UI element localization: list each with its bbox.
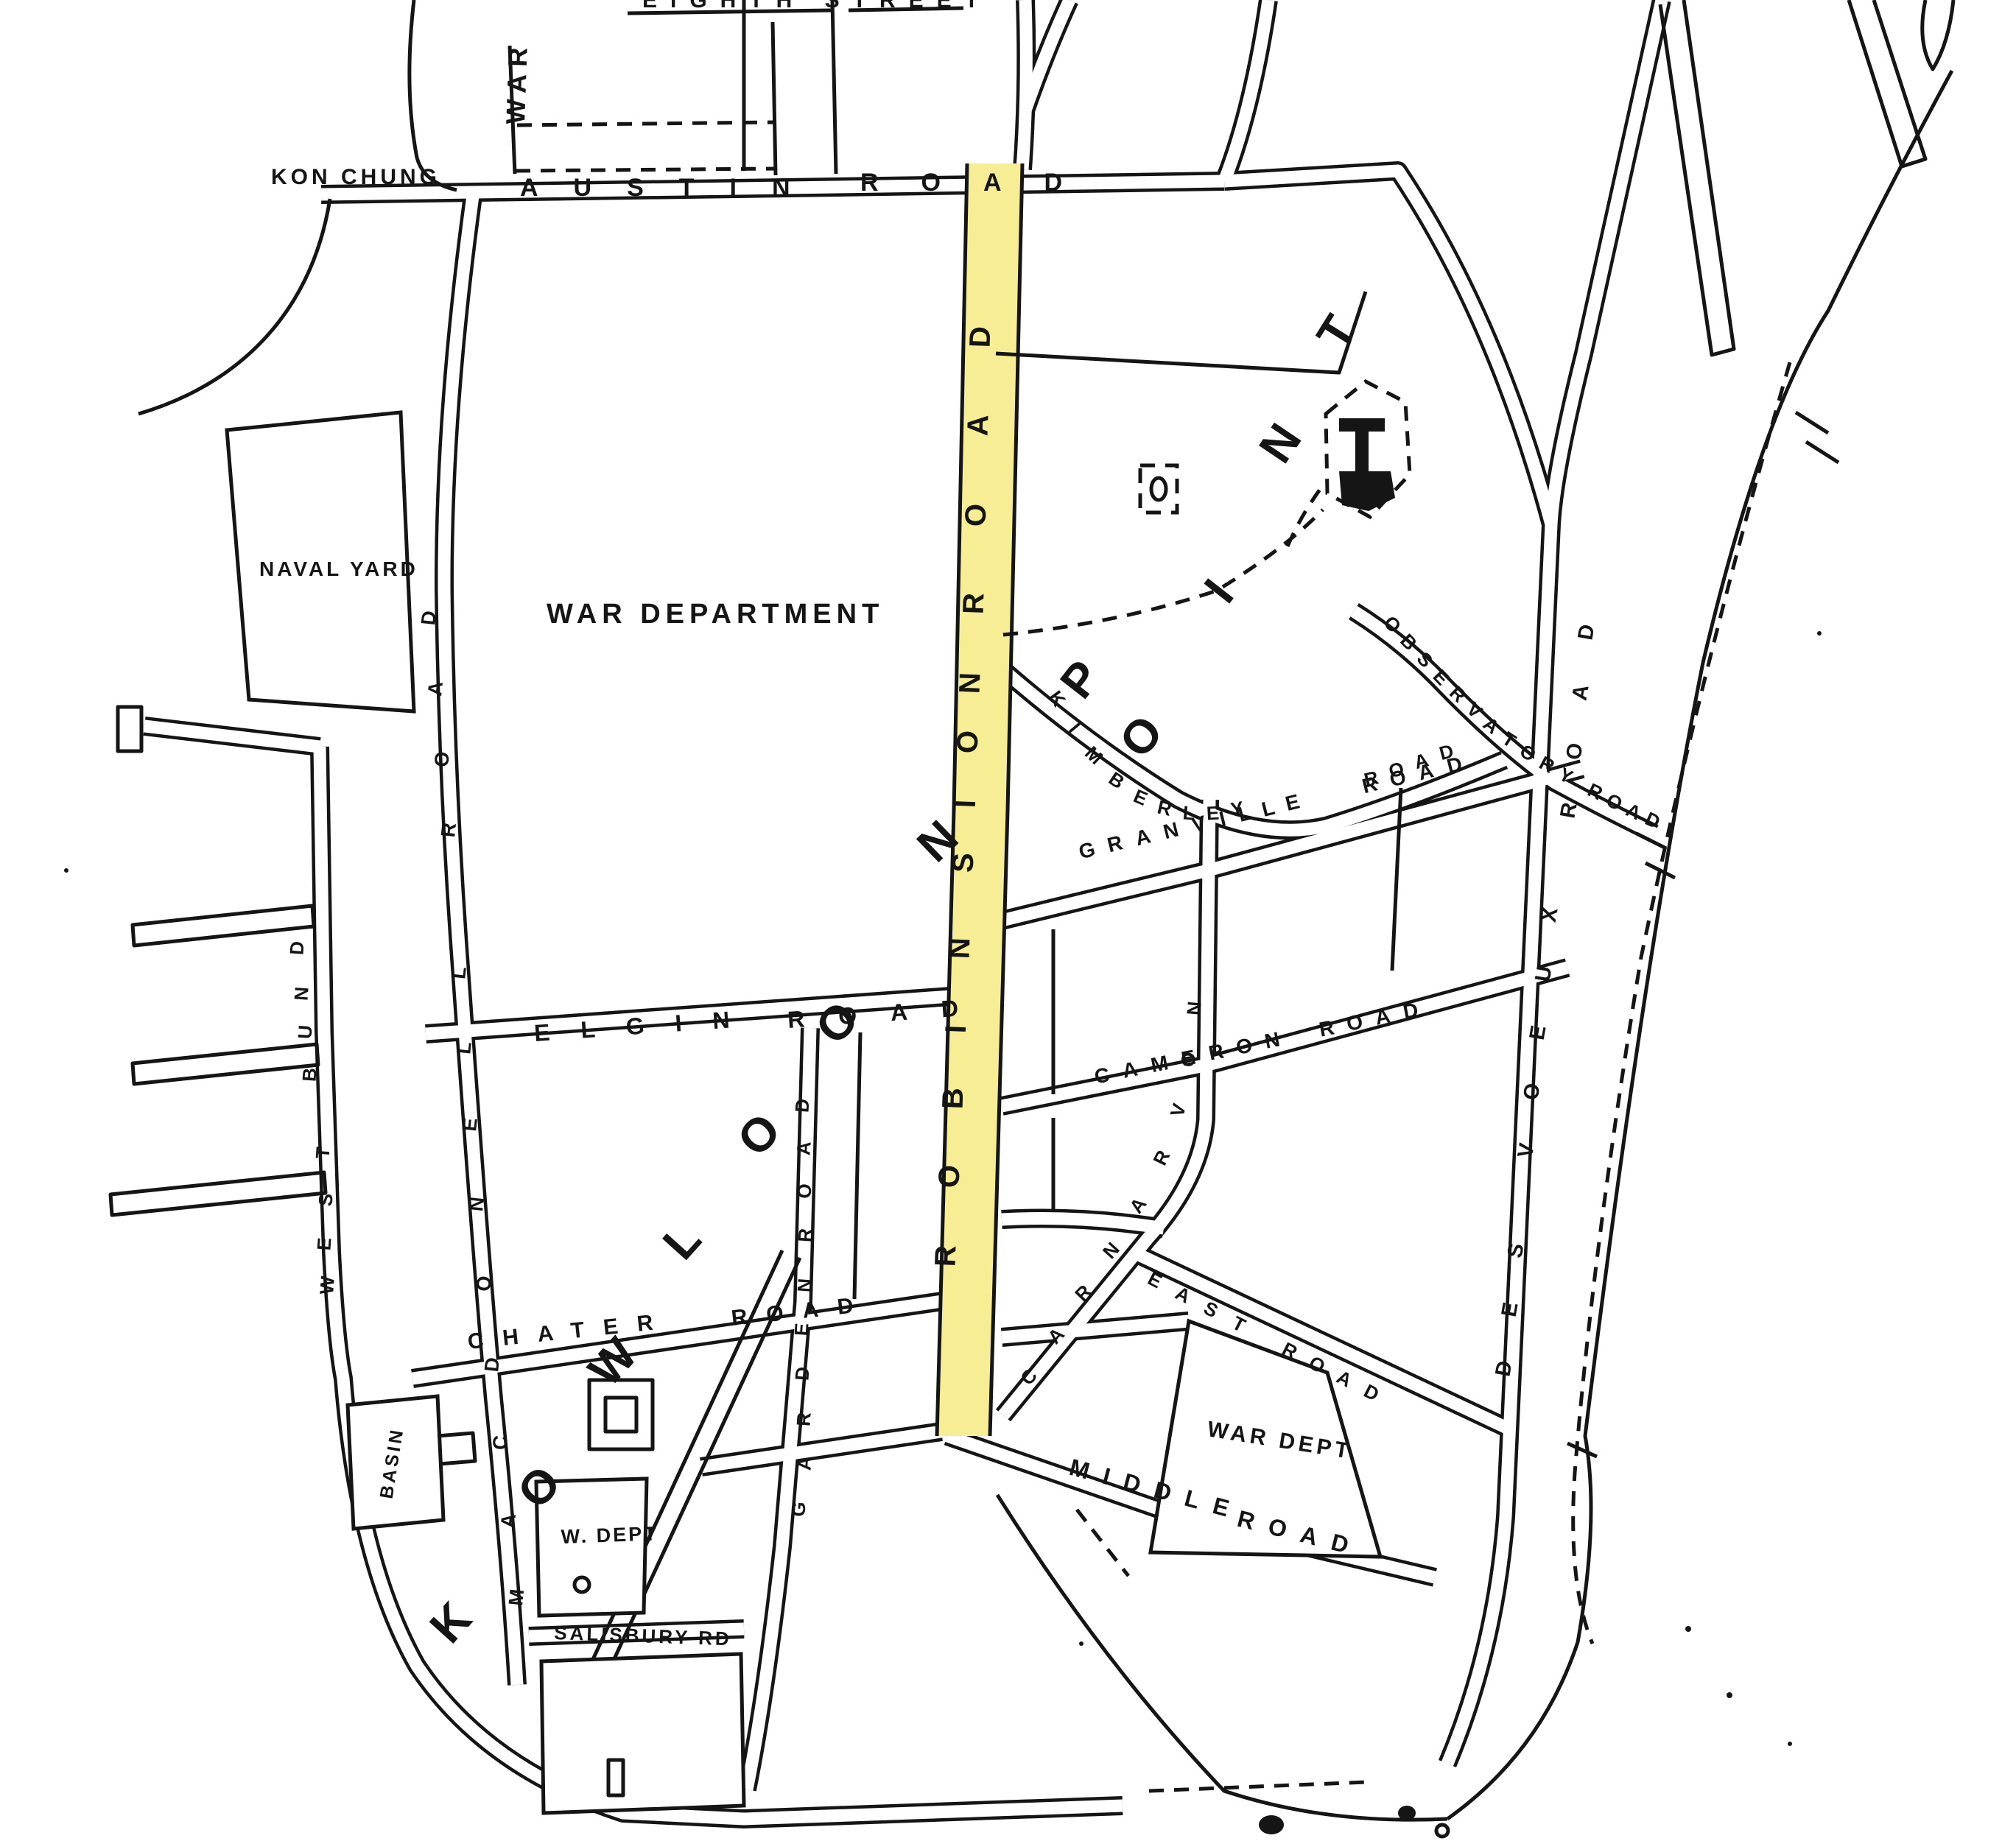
point-label: N	[1248, 414, 1312, 472]
garden_road-label: O	[793, 1183, 815, 1199]
robinsion_road-label: O	[959, 503, 992, 527]
granville_road-label: R	[1105, 831, 1125, 856]
w_dept-label: W. DEPT	[561, 1522, 658, 1548]
west_bund-label: D	[285, 940, 308, 956]
west_bund-label: S	[314, 1193, 337, 1207]
garden_road-label: R	[792, 1412, 815, 1427]
des_voeux_road-label: X	[1537, 905, 1563, 923]
macdonell_road-label: C	[488, 1435, 512, 1451]
rock-3	[1436, 1825, 1448, 1837]
granville_road-label: A	[1416, 758, 1436, 784]
road-fills	[144, 0, 1662, 1819]
west_bund-label: U	[293, 1024, 316, 1040]
carnarvon-label: V	[1166, 1100, 1191, 1119]
garden_road-label: G	[787, 1501, 809, 1517]
pier-2	[133, 1044, 318, 1084]
small-marker-square	[1140, 465, 1177, 513]
carnarvon-label: O	[1176, 1051, 1201, 1069]
granville_road-label: L	[1260, 796, 1277, 821]
macdonell_road-label: L	[447, 965, 471, 980]
des_voeux_road-label: V	[1514, 1141, 1539, 1159]
rock-1	[1259, 1815, 1284, 1834]
war_vertical-label: WAR	[500, 40, 533, 124]
garden_road-label: A	[793, 1456, 815, 1471]
garden_road-label: E	[790, 1323, 812, 1337]
austin_word1-label: AUSTIN	[520, 174, 826, 202]
west_bund-label: B	[298, 1067, 320, 1083]
garden_road-label: D	[790, 1366, 813, 1381]
robinsion_road-label: R	[958, 592, 991, 615]
observatory-building	[1339, 418, 1385, 432]
macdonell_road-label: D	[417, 610, 440, 627]
granville_road-label: O	[1387, 765, 1408, 791]
cameron_road-label: M	[1149, 1051, 1170, 1077]
macdonell_road-label: L	[452, 1041, 476, 1055]
robinsion_road-label: I	[940, 1024, 972, 1034]
carnarvon-label: A	[1125, 1193, 1151, 1217]
robinsion_road-label: R	[930, 1245, 963, 1267]
west_bund-label: T	[312, 1146, 334, 1159]
pier-1	[133, 906, 314, 946]
pier-3	[110, 1172, 326, 1215]
des_voeux_road-label: O	[1562, 742, 1587, 762]
robinsion_road-label: N	[954, 672, 987, 694]
naval_yard-label: NAVAL YARD	[259, 557, 418, 580]
macdonell_road-label: O	[472, 1275, 496, 1292]
des-voeux-dashed-track	[1573, 362, 1790, 1644]
des_voeux_road-label: A	[1568, 683, 1594, 702]
garden_road-label: D	[790, 1098, 813, 1113]
east_road-label: A	[1172, 1281, 1195, 1307]
macdonell_road-label: A	[424, 680, 447, 697]
east_road-label: A	[1333, 1365, 1356, 1391]
macdonell_road-label: E	[458, 1117, 482, 1133]
war_department-label: WAR DEPARTMENT	[547, 599, 884, 630]
robinsion_road-label: O	[933, 1164, 966, 1189]
carnarvon-label: R	[1148, 1147, 1174, 1169]
macdonell_road-label: M	[505, 1588, 528, 1607]
macdonell_road-label: O	[430, 750, 454, 768]
rock-2	[1398, 1806, 1416, 1820]
kowloon-label: O	[727, 1103, 790, 1166]
macdonell_road-label: R	[437, 822, 460, 839]
salisbury-block	[541, 1654, 744, 1813]
robinsion_road-label: B	[937, 1087, 970, 1109]
granville_road-label: N	[1161, 817, 1181, 843]
east_road-label: S	[1201, 1297, 1222, 1323]
kimberley_road-label: E	[1131, 785, 1151, 810]
kon_chung-label: KON CHUNG	[271, 165, 440, 189]
kowloon-label: K	[419, 1592, 481, 1653]
narrow-block-1	[1660, 0, 1734, 355]
east_road-label: T	[1229, 1312, 1249, 1337]
cameron_road-label: O	[1234, 1033, 1254, 1059]
garden_road-label: R	[793, 1228, 816, 1243]
pier-head	[118, 707, 141, 751]
garden_road-label: A	[792, 1141, 815, 1156]
granville_road-label: G	[1076, 837, 1097, 863]
observatory-hill-blob	[1339, 471, 1395, 511]
robinsion_road-label: D	[964, 325, 997, 348]
macdonell_road-label: A	[496, 1513, 520, 1530]
robinsion_road-label: A	[962, 414, 995, 436]
zero-marker	[1151, 478, 1166, 500]
granville_road-label: E	[1283, 789, 1302, 815]
coastline-top-left	[410, 0, 457, 190]
west_bund-label: E	[312, 1237, 335, 1251]
granville_road-label: A	[1133, 824, 1153, 850]
robinsion_road-label: N	[944, 937, 977, 959]
clock-tower-inner	[605, 1398, 636, 1432]
historical-kowloon-map: KON CHUNGEIGHTH STREETAUSTINROADNAVAL YA…	[0, 0, 2016, 1841]
eighth_street-label: EIGHTH STREET	[642, 0, 991, 13]
austin_word2-label: ROAD	[860, 169, 1105, 197]
east_road-label: D	[1360, 1379, 1383, 1405]
des_voeux_road-label: O	[1519, 1082, 1545, 1102]
shore-dashed-line	[1149, 1782, 1367, 1791]
garden_road-label: N	[793, 1278, 815, 1293]
west_bund-label: W	[315, 1275, 339, 1295]
robinsion_road-label: O	[951, 730, 984, 754]
robinsion_road-label: I	[949, 799, 982, 809]
des_voeux_road-label: D	[1574, 622, 1600, 641]
coastline-west	[138, 199, 330, 414]
kowloon-label: L	[653, 1213, 712, 1270]
kimberley_road-label: R	[1156, 796, 1174, 821]
macdonell_road-label: N	[465, 1196, 488, 1213]
observatory-path	[1003, 510, 1323, 635]
basin-arm	[438, 1433, 475, 1464]
coastline-notch	[1922, 0, 1953, 69]
carnarvon-label: N	[1182, 1001, 1206, 1016]
east_road-label: E	[1145, 1267, 1166, 1293]
west_bund-label: N	[289, 986, 312, 1002]
point-label: I	[1194, 569, 1244, 612]
des_voeux_road-label: E	[1525, 1024, 1551, 1042]
macdonell_road-label: D	[480, 1356, 504, 1373]
map-canvas: KON CHUNGEIGHTH STREETAUSTINROADNAVAL YA…	[0, 0, 2016, 1841]
